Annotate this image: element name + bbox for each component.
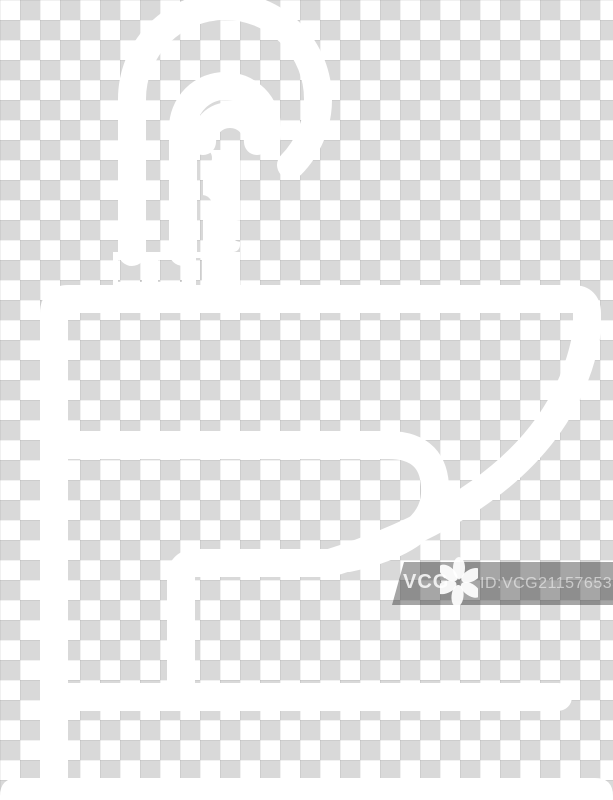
faucet-spout-curl xyxy=(203,115,257,142)
image-id-text: ID:VCG211576535951 xyxy=(480,575,613,593)
faucet-base-plate xyxy=(113,252,240,286)
faucet-knob xyxy=(203,150,240,252)
sink-inner-rim-line xyxy=(62,445,435,558)
washbasin-sink-icon xyxy=(0,0,613,800)
floor-band xyxy=(0,778,613,800)
sink-basin-outline xyxy=(54,299,587,800)
vcg-brand-text: VCG xyxy=(403,571,449,594)
watermark-bar: VCG ID:VCG211576535951 xyxy=(392,562,613,605)
